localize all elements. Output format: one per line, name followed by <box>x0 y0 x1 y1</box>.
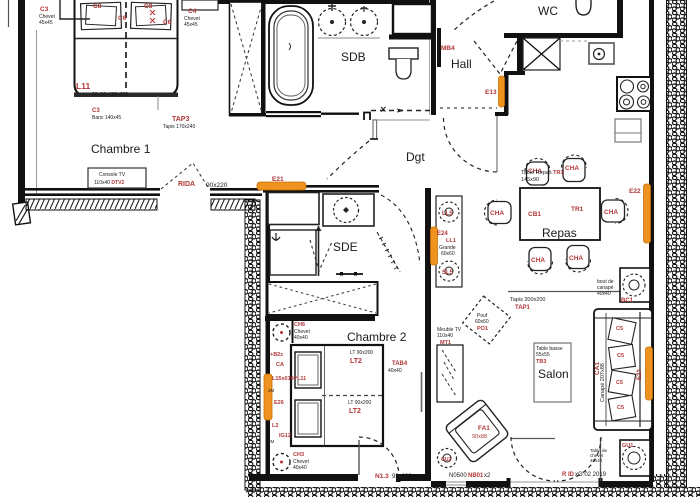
svg-text:C5: C5 <box>617 353 624 359</box>
svg-text:60x60: 60x60 <box>475 319 489 325</box>
svg-text:93x220: 93x220 <box>392 474 412 480</box>
svg-text:R ID: R ID <box>562 472 575 478</box>
svg-text:Console TV: Console TV <box>99 172 126 178</box>
svg-text:TAB4: TAB4 <box>392 361 408 367</box>
svg-text:Dgt: Dgt <box>406 150 425 164</box>
svg-text:IG12: IG12 <box>279 433 291 439</box>
svg-text:TR1: TR1 <box>571 206 584 213</box>
svg-text:CH6: CH6 <box>294 322 305 328</box>
svg-text:CH3: CH3 <box>293 452 304 458</box>
svg-text:NB01: NB01 <box>468 473 484 479</box>
svg-text:E23: E23 <box>637 369 643 380</box>
svg-text:C5: C5 <box>616 380 623 386</box>
svg-text:LT2: LT2 <box>349 408 361 415</box>
svg-text:L15x019?L11: L15x019?L11 <box>272 376 306 382</box>
svg-text:60x60: 60x60 <box>441 251 455 257</box>
svg-text:N1.3: N1.3 <box>375 473 389 480</box>
svg-text:C5: C5 <box>616 326 623 332</box>
svg-text:LT 90x200: LT 90x200 <box>350 350 373 356</box>
svg-text:C3: C3 <box>40 6 49 13</box>
svg-text:E26: E26 <box>274 400 284 406</box>
svg-text:45x45: 45x45 <box>184 22 198 28</box>
svg-text:E24: E24 <box>437 231 448 237</box>
svg-text:110x40: 110x40 <box>437 333 453 339</box>
svg-text:Hall: Hall <box>451 57 472 71</box>
svg-text:xG 02 2019: xG 02 2019 <box>575 472 607 478</box>
svg-text:Tapis 170x240: Tapis 170x240 <box>163 124 195 130</box>
svg-text:CB1: CB1 <box>528 211 541 218</box>
svg-text:CHA: CHA <box>490 210 504 217</box>
svg-text:LT2: LT2 <box>350 358 362 365</box>
svg-text:Salon: Salon <box>538 367 569 381</box>
svg-text:Chambre 2: Chambre 2 <box>347 330 407 344</box>
svg-text:C4: C4 <box>188 8 197 15</box>
svg-text:C3: C3 <box>92 108 100 114</box>
svg-text:40x40: 40x40 <box>597 291 611 297</box>
svg-text:90x88: 90x88 <box>472 434 487 440</box>
svg-text:45x45: 45x45 <box>39 20 53 26</box>
svg-text:BC1: BC1 <box>621 298 634 304</box>
svg-text:LT 90x200: LT 90x200 <box>348 400 371 406</box>
svg-text:Table Repas TR1: Table Repas TR1 <box>521 170 564 176</box>
svg-text:x2: x2 <box>484 473 491 479</box>
svg-text:CA: CA <box>276 362 284 368</box>
svg-text:LL5: LL5 <box>442 211 453 217</box>
svg-text:C8: C8 <box>144 3 153 10</box>
svg-text:2M: 2M <box>268 388 275 393</box>
svg-text:3M: 3M <box>268 439 275 444</box>
svg-text:RIDA: RIDA <box>178 181 195 188</box>
svg-text:MB4: MB4 <box>441 45 455 52</box>
svg-text:55x55: 55x55 <box>536 352 550 358</box>
svg-text:SDB: SDB <box>341 50 366 64</box>
svg-text:WC: WC <box>538 4 558 18</box>
svg-text:TB3: TB3 <box>536 359 546 365</box>
svg-text:C6: C6 <box>118 15 127 22</box>
svg-text:E13: E13 <box>485 89 497 96</box>
svg-text:CHA: CHA <box>604 209 618 216</box>
svg-text:TAP1: TAP1 <box>515 305 531 311</box>
svg-text:Tapis 200x200: Tapis 200x200 <box>510 297 545 303</box>
svg-text:TAP3: TAP3 <box>172 116 189 123</box>
svg-text:E22: E22 <box>629 188 641 195</box>
svg-text:CHA: CHA <box>569 255 583 262</box>
svg-text:CHA: CHA <box>531 257 545 264</box>
svg-text:L11: L11 <box>76 81 90 91</box>
svg-text:C5: C5 <box>617 405 624 411</box>
svg-text:PO1: PO1 <box>477 326 488 332</box>
svg-text:C6: C6 <box>163 19 172 26</box>
svg-text:LL1: LL1 <box>446 238 456 244</box>
svg-text:FA1: FA1 <box>478 425 490 432</box>
svg-text:CHA: CHA <box>565 165 579 172</box>
svg-text:CA1: CA1 <box>594 362 601 375</box>
svg-text:Banc 140x45: Banc 140x45 <box>92 115 121 121</box>
svg-text:Repas: Repas <box>542 226 577 240</box>
svg-text:90+90=180x200: 90+90=180x200 <box>92 92 128 98</box>
svg-text:C8: C8 <box>93 3 102 10</box>
svg-text:SDE: SDE <box>333 240 358 254</box>
svg-text:E21: E21 <box>272 176 284 183</box>
svg-text:N0500: N0500 <box>449 473 467 479</box>
svg-text:90x220: 90x220 <box>206 182 228 189</box>
svg-text:40x40: 40x40 <box>388 368 402 374</box>
svg-text:Chambre 1: Chambre 1 <box>91 142 151 156</box>
svg-text:110x40 DTV2: 110x40 DTV2 <box>94 180 124 186</box>
svg-text:L2: L2 <box>272 423 278 429</box>
svg-text:GU2: GU2 <box>441 457 452 463</box>
svg-text:40x40: 40x40 <box>293 465 307 471</box>
svg-text:+B2z: +B2z <box>270 352 283 358</box>
svg-text:GU1: GU1 <box>622 443 633 449</box>
svg-text:40x40: 40x40 <box>294 335 308 341</box>
svg-text:SL5: SL5 <box>442 270 454 276</box>
svg-text:145x90: 145x90 <box>521 177 539 183</box>
